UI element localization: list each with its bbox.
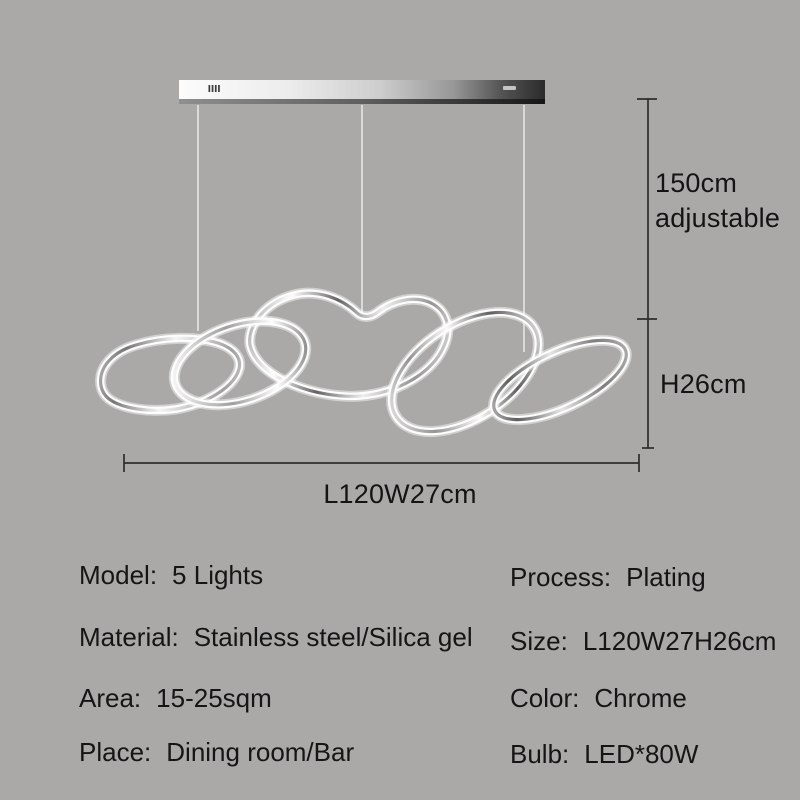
spec-label: Size:	[510, 626, 568, 656]
pendant-lamp	[101, 80, 637, 456]
spec-row-model: Model:5 Lights	[79, 560, 263, 591]
spec-value: Plating	[626, 562, 706, 592]
canopy-brand-icon	[503, 86, 516, 90]
spec-value: Dining room/Bar	[166, 737, 354, 767]
spec-value: 15-25sqm	[156, 683, 272, 713]
spec-label: Process:	[510, 562, 611, 592]
spec-label: Bulb:	[510, 739, 569, 769]
spec-row-bulb: Bulb:LED*80W	[510, 739, 698, 770]
drop-length-label: 150cm adjustable	[655, 166, 780, 236]
spec-value: 5 Lights	[172, 560, 263, 590]
light-ring-4	[371, 288, 560, 456]
spec-row-area: Area:15-25sqm	[79, 683, 272, 714]
spec-value: Chrome	[594, 683, 686, 713]
spec-label: Place:	[79, 737, 151, 767]
spec-label: Material:	[79, 622, 179, 652]
spec-row-color: Color:Chrome	[510, 683, 687, 714]
product-image: .glow {fill:none;stroke:#ffffff;stroke-w…	[0, 0, 800, 800]
spec-label: Color:	[510, 683, 579, 713]
fixture-height-label: H26cm	[660, 367, 747, 402]
spec-row-size: Size:L120W27H26cm	[510, 626, 776, 657]
light-ring-5	[483, 324, 637, 436]
spec-value: LED*80W	[584, 739, 698, 769]
drop-height-dimension-line	[637, 99, 657, 448]
spec-row-process: Process:Plating	[510, 562, 706, 593]
drop-length-note: adjustable	[655, 201, 780, 236]
drop-length-value: 150cm	[655, 166, 780, 201]
spec-row-material: Material:Stainless steel/Silica gel	[79, 622, 473, 653]
spec-row-place: Place:Dining room/Bar	[79, 737, 354, 768]
spec-value: Stainless steel/Silica gel	[194, 622, 473, 652]
canopy-bar	[179, 80, 545, 104]
spec-label: Model:	[79, 560, 157, 590]
fixture-length-label: L120W27cm	[260, 477, 540, 512]
fixture-length-dimension-line	[124, 454, 639, 472]
spec-value: L120W27H26cm	[583, 626, 777, 656]
spec-label: Area:	[79, 683, 141, 713]
